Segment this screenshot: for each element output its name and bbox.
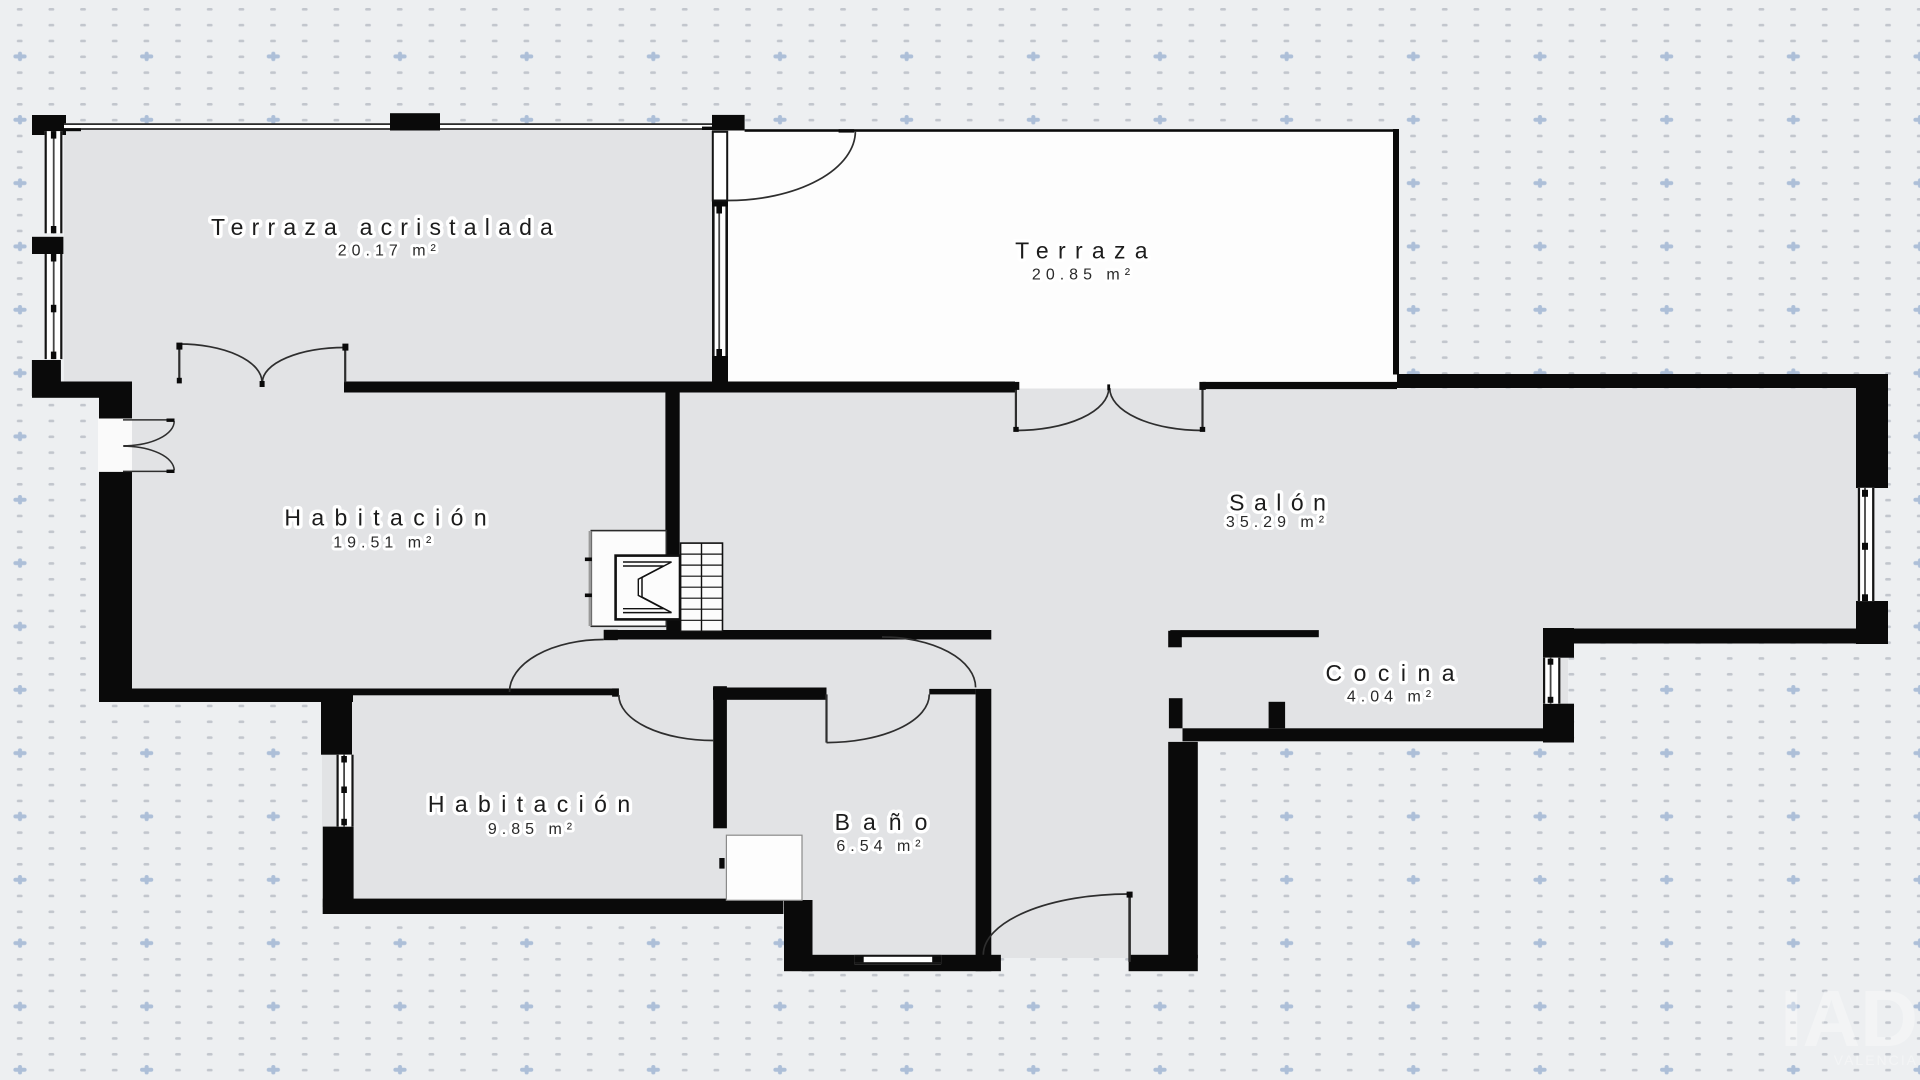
- svg-text:20.85 m²: 20.85 m²: [1032, 267, 1135, 284]
- svg-text:IAD: IAD: [1780, 974, 1918, 1063]
- svg-text:19.51 m²: 19.51 m²: [333, 535, 436, 552]
- svg-text:9.85 m²: 9.85 m²: [488, 821, 577, 838]
- svg-text:Baño: Baño: [835, 809, 941, 835]
- svg-text:Cocina: Cocina: [1325, 660, 1466, 686]
- svg-text:6.54 m²: 6.54 m²: [836, 838, 925, 855]
- svg-text:35.29 m²: 35.29 m²: [1226, 514, 1329, 531]
- svg-text:Habitación: Habitación: [428, 791, 641, 817]
- svg-text:Salón: Salón: [1229, 490, 1335, 516]
- svg-text:Terraza acristalada: Terraza acristalada: [211, 214, 561, 240]
- svg-text:20.17 m²: 20.17 m²: [338, 243, 441, 260]
- svg-text:Terraza: Terraza: [1015, 237, 1157, 263]
- svg-text:4.04 m²: 4.04 m²: [1347, 689, 1436, 706]
- svg-text:Habitación: Habitación: [284, 505, 497, 531]
- svg-text:VALENCIA: VALENCIA: [1834, 1052, 1918, 1068]
